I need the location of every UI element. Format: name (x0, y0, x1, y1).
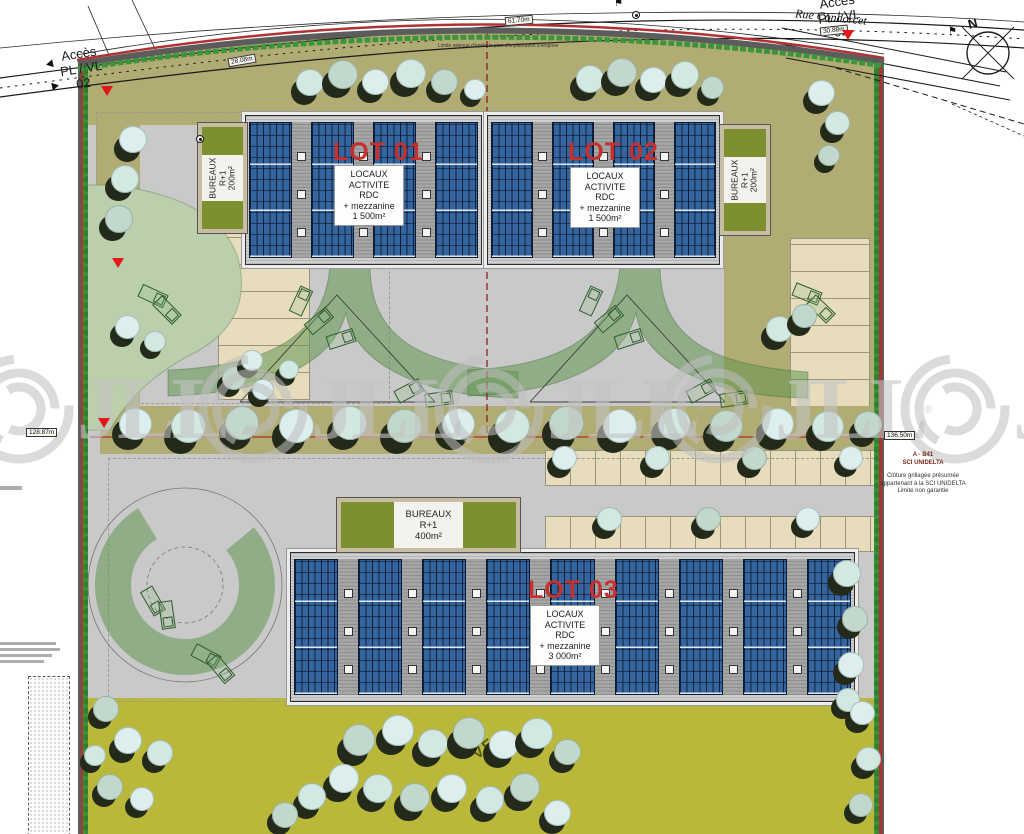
jll-watermark: JLL® (898, 352, 1024, 467)
survey-marker-icon (101, 86, 113, 96)
traffic-arrow-icon (51, 81, 60, 90)
roof-strip (466, 559, 486, 695)
skylight-icon (344, 627, 353, 636)
left-annotation (0, 486, 22, 490)
solar-panel-strip (422, 559, 466, 695)
parcel-annotation: A - B41 SCI UNIDELTA Clôture grillagée p… (875, 452, 971, 496)
solar-panel-strip (743, 559, 787, 695)
skylight-icon (793, 627, 802, 636)
traffic-arrow-icon (45, 59, 54, 68)
flag-icon: ⚑ (614, 0, 623, 9)
bureaux-center-label: BUREAUXR+1400m² (406, 509, 452, 542)
lot03-label: LOCAUXACTIVITE RDC+ mezzanine 3 000m² (530, 605, 600, 666)
skylight-icon (344, 665, 353, 674)
roads-layer (0, 0, 1024, 240)
solar-panel-strip (679, 559, 723, 695)
lot01-title: LOT 01 (333, 138, 424, 167)
survey-marker-icon (842, 30, 854, 40)
dim-128m: 128.87m (26, 428, 57, 437)
roof-strip (659, 559, 679, 695)
skylight-icon (472, 589, 481, 598)
green-band (463, 502, 516, 548)
skylight-icon (601, 627, 610, 636)
lot03-title: LOT 03 (528, 576, 619, 605)
survey-marker-icon (98, 418, 110, 428)
lot02-title: LOT 02 (568, 138, 659, 167)
dim-136m: 136.50m (884, 431, 915, 440)
survey-point-icon (632, 11, 640, 19)
skylight-icon (665, 627, 674, 636)
skylight-icon (536, 665, 545, 674)
access-label-left: AccèsPL / VL02 (57, 43, 106, 94)
skylight-icon (408, 627, 417, 636)
skylight-icon (729, 589, 738, 598)
survey-marker-icon (112, 258, 124, 268)
skylight-icon (472, 627, 481, 636)
adjacent-building-footprint (28, 676, 70, 834)
skylight-icon (793, 665, 802, 674)
green-band (341, 502, 394, 548)
roof-strip (338, 559, 358, 695)
solar-panel-strip (807, 559, 851, 695)
skylight-icon (793, 589, 802, 598)
skylight-icon (408, 665, 417, 674)
skylight-icon (408, 589, 417, 598)
skylight-icon (601, 665, 610, 674)
solar-panel-strip (486, 559, 530, 695)
survey-point-icon (196, 135, 204, 143)
roof-strip (723, 559, 743, 695)
limit-annotation: Limite retenue d'après le plan d'implant… (438, 43, 558, 49)
skylight-icon (665, 589, 674, 598)
solar-panel-strip (358, 559, 402, 695)
skylight-icon (472, 665, 481, 674)
skylight-icon (665, 665, 674, 674)
bureaux-box-center: BUREAUXR+1400m² (337, 498, 520, 552)
skylight-icon (729, 665, 738, 674)
solar-panel-strip (294, 559, 338, 695)
lot02-label: LOCAUXACTIVITE RDC+ mezzanine 1 500m² (570, 167, 640, 228)
skylight-icon (729, 627, 738, 636)
roof-strip (787, 559, 807, 695)
lot01-label: LOCAUXACTIVITE RDC+ mezzanine 1 500m² (334, 165, 404, 226)
skylight-icon (344, 589, 353, 598)
solar-panel-strip (615, 559, 659, 695)
site-plan-canvas: BUREAUXR+1200m² BUREAUXR+1200m² BUREAUXR… (0, 0, 1024, 834)
truck-turning-circle (84, 484, 287, 687)
roof-strip (402, 559, 422, 695)
flag-icon: ⚑ (948, 26, 957, 37)
